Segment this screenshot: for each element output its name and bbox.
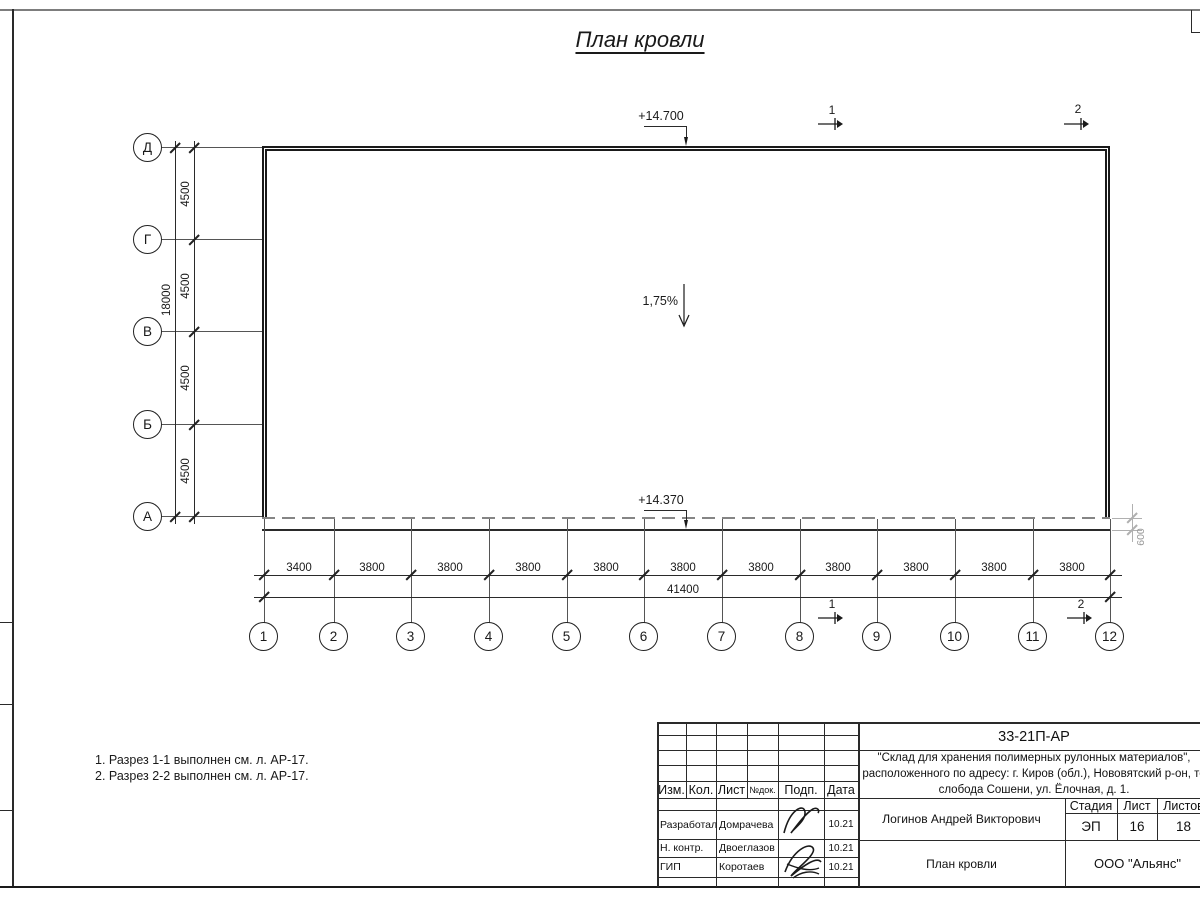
- axis-label: 1: [260, 629, 268, 644]
- axis-label: В: [143, 324, 152, 339]
- titleblock-line: [657, 877, 858, 878]
- axis-bubble: 2: [319, 622, 348, 651]
- page-title: План кровли: [520, 27, 760, 53]
- elevation-arrow-icon: [684, 520, 688, 529]
- sheet-top-border: [0, 9, 1200, 11]
- titleblock-role: ГИП: [657, 857, 716, 877]
- dimension-value: 4500: [180, 450, 192, 492]
- corner-box-line: [1191, 32, 1200, 33]
- slope-value: 1,75%: [620, 294, 678, 308]
- titleblock-col-header: №док.: [747, 781, 778, 798]
- titleblock-col-header: Лист: [716, 781, 747, 798]
- sheet-header: Лист: [1117, 798, 1157, 813]
- section-mark-arrow-icon: [1064, 118, 1090, 130]
- dimension-value: 4500: [180, 357, 192, 399]
- axis-label: 4: [485, 629, 493, 644]
- titleblock-line: [657, 765, 858, 766]
- elevation-leader: [644, 126, 687, 127]
- axis-bubble: 8: [785, 622, 814, 651]
- sheets-total: 18: [1157, 813, 1200, 840]
- axis-bubble: 7: [707, 622, 736, 651]
- dimension-value: 3800: [345, 562, 399, 574]
- elevation-value: +14.370: [630, 493, 692, 507]
- dimension-value: 4500: [180, 265, 192, 307]
- company-name: ООО "Альянс": [1065, 840, 1200, 887]
- section-mark-label: 1: [822, 597, 842, 611]
- axis-label: 12: [1102, 629, 1117, 644]
- margin-mark: [0, 622, 13, 623]
- project-line: слобода Сошени, ул. Ёлочная, д. 1.: [939, 782, 1130, 798]
- titleblock-col-header: Дата: [824, 781, 858, 798]
- approver-name: Логинов Андрей Викторович: [858, 798, 1065, 840]
- elevation-leader: [644, 510, 687, 511]
- note-line: 2. Разрез 2-2 выполнен см. л. АР-17.: [95, 769, 309, 785]
- axis-bubble: 10: [940, 622, 969, 651]
- elevation-arrow-icon: [684, 137, 688, 146]
- section-mark-arrow-icon: [1067, 612, 1093, 624]
- project-line: "Склад для хранения полимерных рулонных …: [878, 750, 1191, 766]
- signature-icon: [779, 838, 825, 884]
- axis-line: [162, 424, 262, 425]
- section-mark-label: 1: [822, 103, 842, 117]
- dimension-value: 3800: [734, 562, 788, 574]
- dimension-line-total-horizontal: [254, 597, 1122, 598]
- titleblock-col-header: Изм.: [657, 781, 686, 798]
- axis-label: Г: [144, 232, 151, 247]
- dimension-value: 3800: [579, 562, 633, 574]
- axis-label: 6: [640, 629, 648, 644]
- axis-label: 7: [718, 629, 726, 644]
- titleblock-name: Коротаев: [716, 857, 778, 877]
- roof-eave-edge: [262, 529, 1111, 531]
- stage-header: Стадия: [1065, 798, 1117, 813]
- dimension-value: 3800: [501, 562, 555, 574]
- sheet-left-border: [12, 9, 14, 887]
- section-mark-label: 2: [1068, 102, 1088, 116]
- document-code: 33-21П-АР: [858, 723, 1200, 750]
- signature-icon: [780, 801, 824, 839]
- titleblock-date: 10.21: [824, 810, 858, 839]
- dimension-total-value: 18000: [161, 272, 173, 328]
- axis-line: [162, 516, 262, 517]
- dimension-extension: [1112, 518, 1142, 519]
- section-mark-label: 2: [1071, 597, 1091, 611]
- note-line: 1. Разрез 1-1 выполнен см. л. АР-17.: [95, 753, 309, 769]
- titleblock-role: Н. контр.: [657, 839, 716, 857]
- axis-label: 8: [796, 629, 804, 644]
- axis-label: Д: [143, 140, 152, 155]
- slope-arrow-icon: [677, 284, 691, 328]
- axis-label: 2: [330, 629, 338, 644]
- margin-mark: [0, 704, 13, 705]
- titleblock-line: [657, 735, 858, 736]
- axis-line: [162, 147, 262, 148]
- axis-label: 3: [407, 629, 415, 644]
- drawing-title: План кровли: [858, 840, 1065, 887]
- section-mark-arrow-icon: [818, 118, 844, 130]
- margin-mark: [0, 810, 13, 811]
- dimension-value: 3800: [656, 562, 710, 574]
- dimension-value: 3400: [272, 562, 326, 574]
- dimension-value: 600: [1135, 522, 1147, 552]
- dimension-line-vertical: [1132, 504, 1133, 542]
- dimension-value: 3800: [1045, 562, 1099, 574]
- project-description: "Склад для хранения полимерных рулонных …: [858, 750, 1200, 798]
- axis-bubble: 3: [396, 622, 425, 651]
- dimension-value: 4500: [180, 173, 192, 215]
- axis-bubble: 1: [249, 622, 278, 651]
- titleblock-col-header: Кол.: [686, 781, 716, 798]
- dimension-value: 3800: [967, 562, 1021, 574]
- axis-label: Б: [143, 417, 152, 432]
- axis-label: 5: [563, 629, 571, 644]
- axis-bubble: 6: [629, 622, 658, 651]
- axis-label: 9: [873, 629, 881, 644]
- dimension-line-total-vertical: [175, 141, 176, 524]
- project-line: расположенного по адресу: г. Киров (обл.…: [862, 766, 1200, 782]
- axis-bubble: 12: [1095, 622, 1124, 651]
- dimension-value: 3800: [889, 562, 943, 574]
- titleblock-col-header: Подп.: [778, 781, 824, 798]
- axis-bubble: 9: [862, 622, 891, 651]
- elevation-value: +14.700: [630, 109, 692, 123]
- drawing-notes: 1. Разрез 1-1 выполнен см. л. АР-17. 2. …: [95, 753, 309, 784]
- titleblock-name: Домрачева: [716, 810, 778, 839]
- titleblock-date: 10.21: [824, 839, 858, 857]
- axis-bubble: 5: [552, 622, 581, 651]
- stage-value: ЭП: [1065, 813, 1117, 840]
- axis-label: А: [143, 509, 152, 524]
- dimension-value: 3800: [811, 562, 865, 574]
- axis-bubble: Д: [133, 133, 162, 162]
- section-mark-arrow-icon: [818, 612, 844, 624]
- axis-bubble: А: [133, 502, 162, 531]
- axis-bubble: Г: [133, 225, 162, 254]
- titleblock-date: 10.21: [824, 857, 858, 877]
- axis-line: [162, 239, 262, 240]
- corner-box-line: [1191, 10, 1192, 33]
- axis-label: 11: [1025, 629, 1039, 644]
- dimension-value: 3800: [423, 562, 477, 574]
- axis-line: [162, 331, 262, 332]
- titleblock-name: Двоеглазов: [716, 839, 778, 857]
- dimension-total-value: 41400: [653, 584, 713, 596]
- axis-bubble: 4: [474, 622, 503, 651]
- sheet-number: 16: [1117, 813, 1157, 840]
- axis-bubble: 11: [1018, 622, 1047, 651]
- titleblock-role: Разработал: [657, 810, 716, 839]
- axis-bubble: Б: [133, 410, 162, 439]
- sheets-header: Листов: [1157, 798, 1200, 813]
- drawing-sheet: План кровли Д Г В Б А 4500 4500 4500 450…: [0, 0, 1200, 900]
- roof-outline: [262, 146, 1110, 519]
- axis-bubble: В: [133, 317, 162, 346]
- axis-label: 10: [947, 629, 962, 644]
- dimension-line-horizontal: [254, 575, 1122, 576]
